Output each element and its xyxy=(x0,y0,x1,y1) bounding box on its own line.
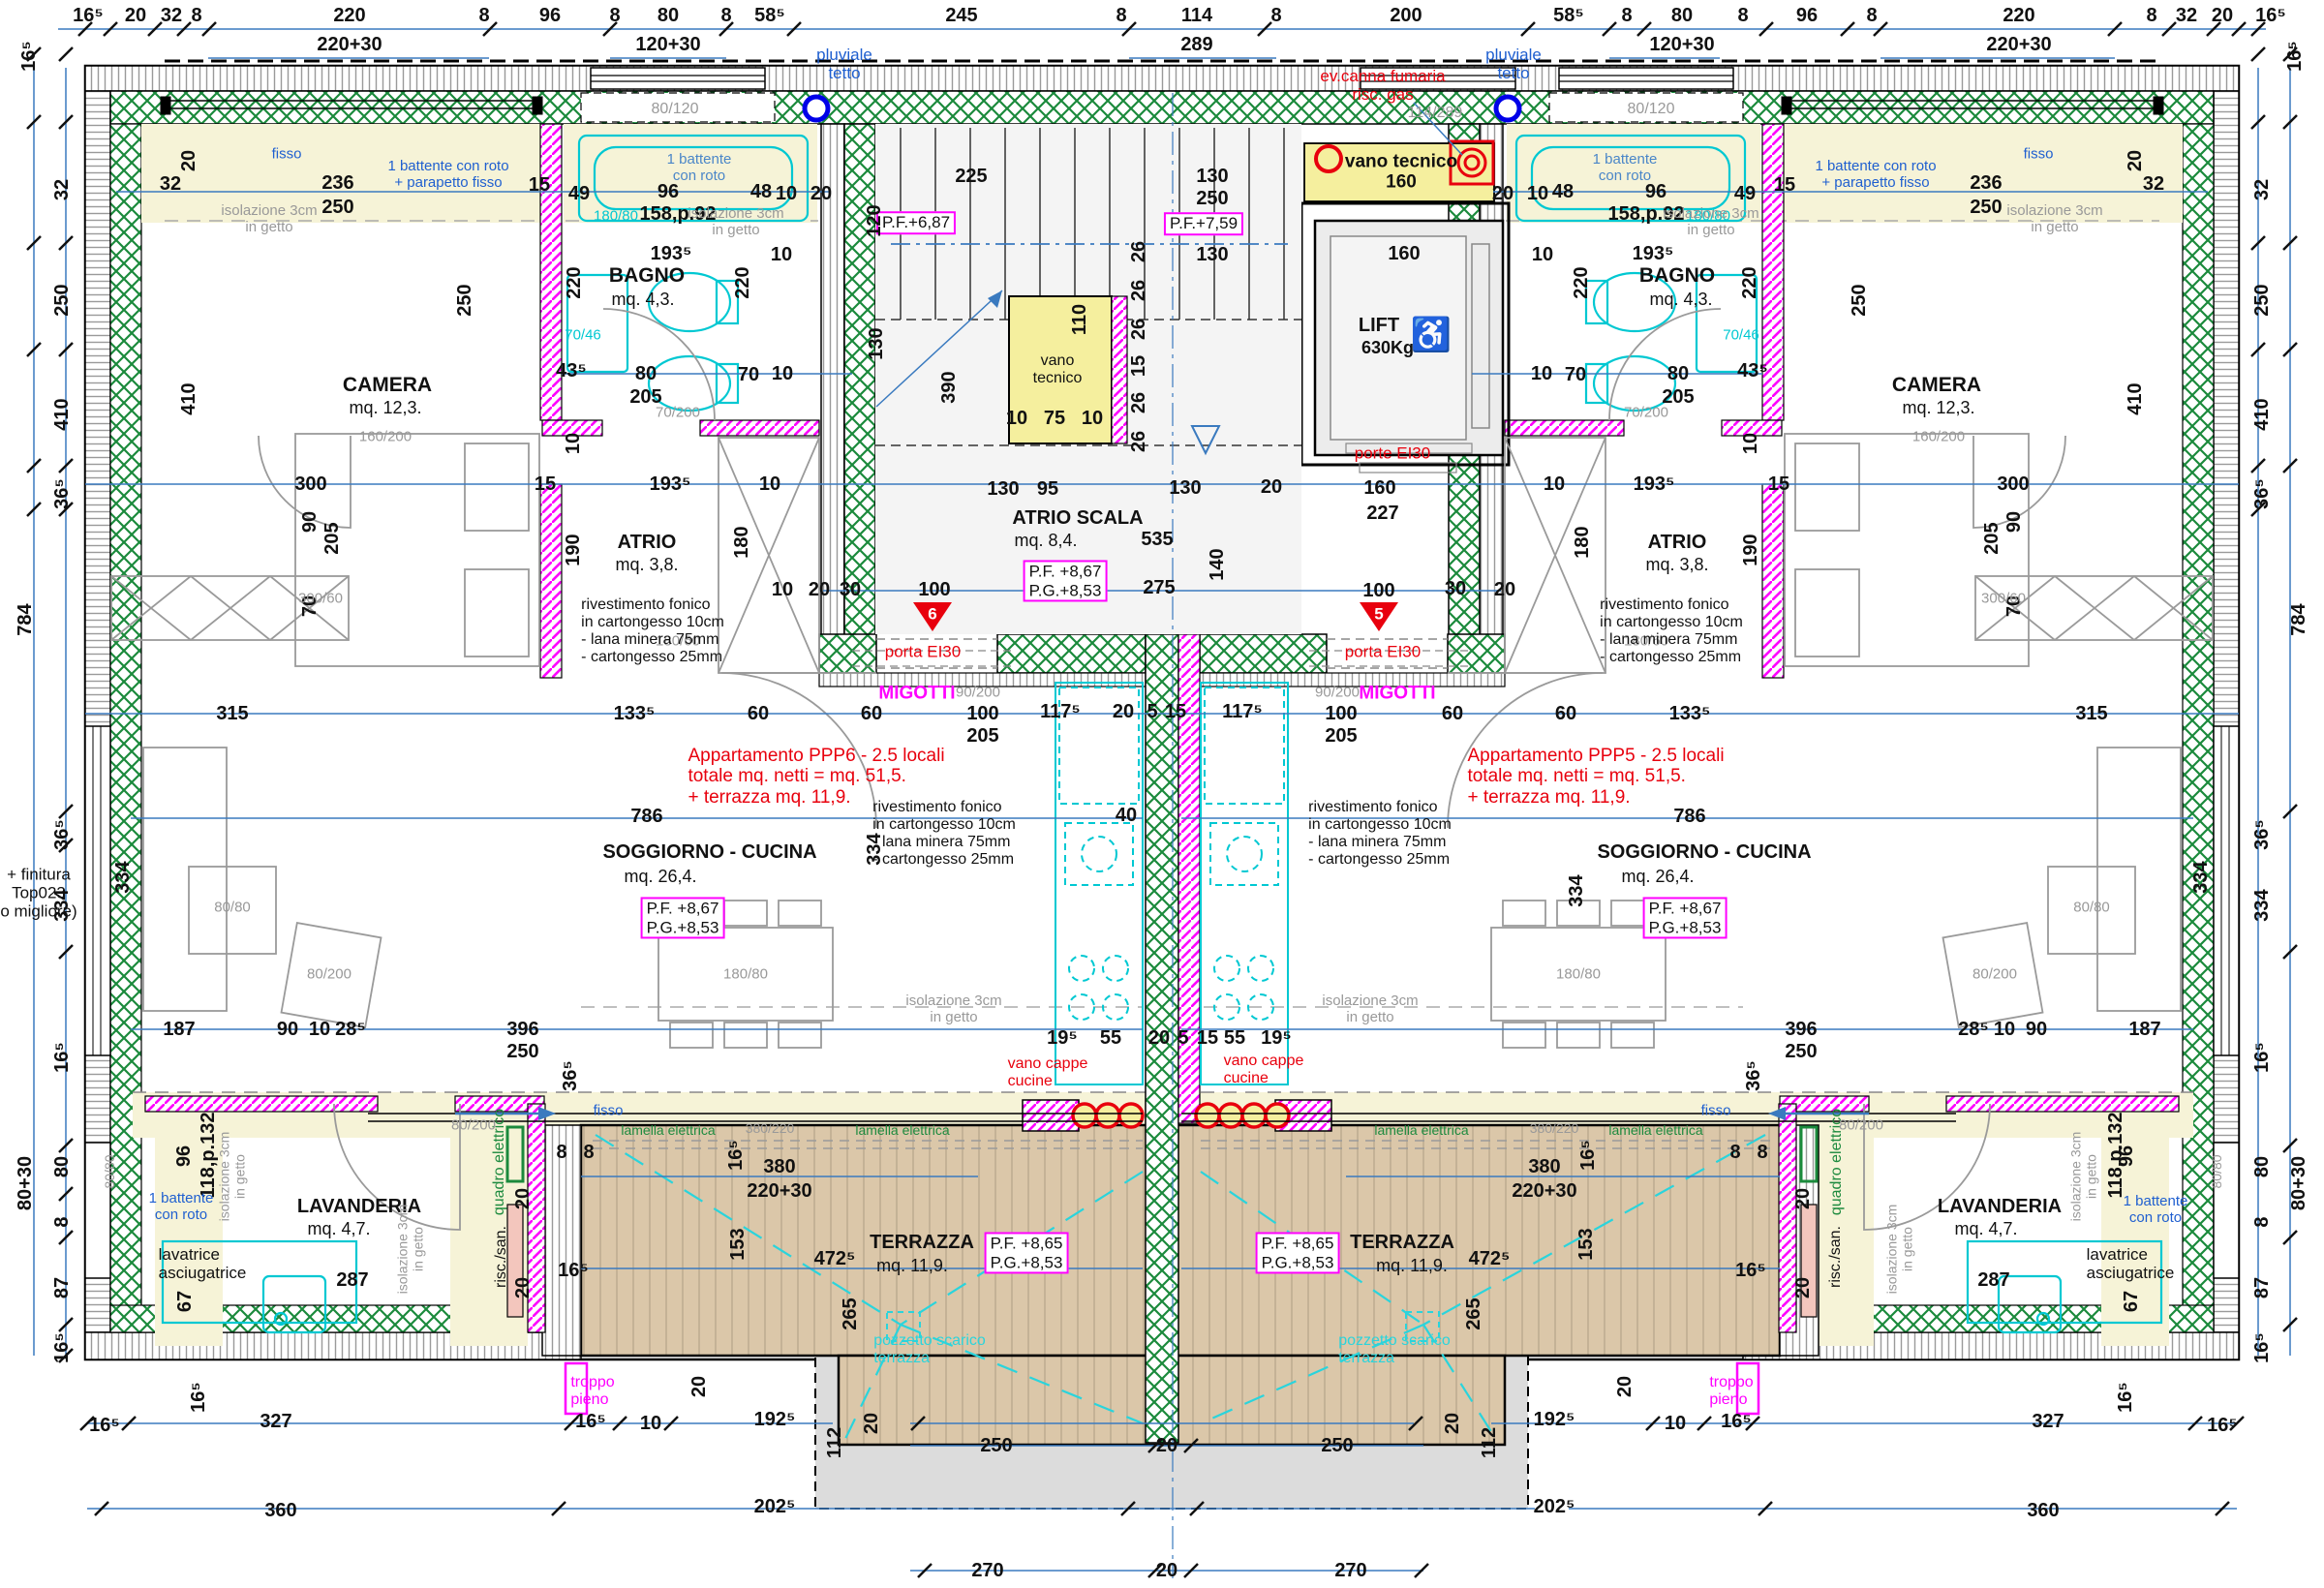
note-iso-sogg-right: isolazione 3cm in getto xyxy=(1322,993,1418,1026)
dim-10: 10 xyxy=(1740,433,1761,454)
dim-20: 20 xyxy=(1792,1277,1814,1298)
dim-5: 5 xyxy=(1177,1027,1188,1049)
dim-289: 289 xyxy=(1180,34,1212,55)
dim-784: 784 xyxy=(15,603,36,635)
dim-250: 250 xyxy=(1849,284,1870,316)
dim-48: 48 xyxy=(1552,181,1574,202)
dim-300: 300 xyxy=(294,473,326,495)
dim-20: 20 xyxy=(1148,1027,1170,1049)
dim-16: 16⁵ xyxy=(51,1042,73,1073)
dim-334: 334 xyxy=(112,861,134,893)
dim-80: 80 xyxy=(1667,363,1689,384)
dim-19: 19⁵ xyxy=(1047,1027,1078,1049)
dim-80: 80 xyxy=(635,363,657,384)
dim-187: 187 xyxy=(2128,1019,2160,1040)
note-lamella-4: lamella elettrica xyxy=(1608,1123,1702,1139)
dim-10: 10 xyxy=(1527,183,1548,204)
dim-786: 786 xyxy=(630,806,662,827)
dim-60: 60 xyxy=(748,703,769,724)
dim-8: 8 xyxy=(1757,1142,1767,1163)
dim-120+30: 120+30 xyxy=(635,34,700,55)
dim-mq.26,4.: mq. 26,4. xyxy=(1621,867,1694,886)
note-battente-cam-right: 1 battente con roto + parapetto fisso xyxy=(1815,159,1936,192)
dim-8: 8 xyxy=(1737,5,1748,26)
dim-80120: 80/120 xyxy=(1628,101,1675,118)
dim-472: 472⁵ xyxy=(1469,1248,1511,1269)
dim-10: 10 xyxy=(772,363,793,384)
dim-110: 110 xyxy=(1069,304,1090,335)
dim-380220: 380/220 xyxy=(746,1121,795,1137)
floor-plan-sheet: 16⁵20328220220+30896880120+30858⁵2458114… xyxy=(0,0,2324,1588)
note-pozzetto-right: pozzetto scarico terrazza xyxy=(1338,1332,1451,1367)
dim-58: 58⁵ xyxy=(1553,5,1584,26)
dim-16: 16⁵ xyxy=(89,1415,120,1436)
dim-10: 10 xyxy=(772,579,793,600)
dim-300: 300 xyxy=(1997,473,2029,495)
note-iso-lav-right-2: isolazione 3cm in getto xyxy=(1884,1205,1914,1295)
dim-220: 220 xyxy=(333,5,365,26)
dim-327: 327 xyxy=(260,1411,291,1432)
dim-mq.8,4.: mq. 8,4. xyxy=(1014,531,1077,550)
note-canna-fumaria: ev.canna fumaria risc. gas xyxy=(1320,67,1445,104)
dim-80200: 80/200 xyxy=(1972,967,2017,984)
dim-220+30: 220+30 xyxy=(317,34,382,55)
dim-16: 16⁵ xyxy=(2115,1382,2136,1413)
dim-180: 180 xyxy=(1572,526,1593,558)
dim-334: 334 xyxy=(1566,874,1587,906)
dim-20: 20 xyxy=(1494,579,1515,600)
dim-32: 32 xyxy=(51,179,73,200)
dim-250: 250 xyxy=(1196,188,1228,209)
dim-250: 250 xyxy=(1321,1435,1353,1456)
dim-96: 96 xyxy=(539,5,561,26)
note-fisso-terr-left: fisso xyxy=(594,1104,624,1120)
dim-15: 15 xyxy=(1197,1027,1218,1049)
note-fisso-terr-right: fisso xyxy=(1701,1104,1731,1120)
dim-30: 30 xyxy=(840,579,861,600)
dim-8: 8 xyxy=(609,5,620,26)
dim-236: 236 xyxy=(321,172,353,194)
dim-67: 67 xyxy=(174,1291,196,1312)
room-lift: LIFT xyxy=(1359,315,1399,336)
label-vano-tecnico-small: vano tecnico xyxy=(1033,352,1083,387)
dim-160: 160 xyxy=(1363,477,1395,499)
dim-200: 200 xyxy=(1390,5,1422,26)
dim-193: 193⁵ xyxy=(651,243,692,264)
dim-160: 160 xyxy=(1388,243,1420,264)
note-porte-ei30: porte EI30 xyxy=(1355,443,1430,462)
room-lavanderia-right: LAVANDERIA xyxy=(1938,1196,2062,1217)
label-vano-tecnico-top: vano tecnico 160 xyxy=(1345,152,1457,194)
dim-15: 15 xyxy=(1165,701,1186,722)
apt-ppp5: Appartamento PPP5 - 2.5 locali totale mq… xyxy=(1467,746,1724,808)
dim-30060: 300/60 xyxy=(298,592,343,608)
dim-49: 49 xyxy=(568,183,590,204)
dim-16: 16⁵ xyxy=(1577,1140,1599,1171)
dim-19: 19⁵ xyxy=(1261,1027,1292,1049)
dim-96: 96 xyxy=(1796,5,1818,26)
dim-28: 28⁵ xyxy=(1958,1019,1989,1040)
note-pluviale-left: pluviale tetto xyxy=(816,46,872,82)
dim-334: 334 xyxy=(864,833,885,865)
dim-265: 265 xyxy=(840,1298,861,1329)
dim-117: 117⁵ xyxy=(1222,701,1263,722)
note-fonico-kitchen-right: rivestimento fonico in cartongesso 10cm … xyxy=(1308,799,1452,869)
dim-26: 26 xyxy=(1128,241,1149,262)
dim-334: 334 xyxy=(2190,861,2212,893)
note-iso-cam-right: isolazione 3cm in getto xyxy=(2006,203,2102,236)
dim-70: 70 xyxy=(738,364,759,385)
dim-390: 390 xyxy=(938,371,960,403)
note-pluviale-right: pluviale tetto xyxy=(1485,46,1542,82)
dim-8080: 80/80 xyxy=(103,1154,118,1188)
dim-15: 15 xyxy=(1774,174,1795,196)
room-atrio-scala: ATRIO SCALA xyxy=(1012,507,1143,529)
dim-8: 8 xyxy=(720,5,731,26)
dim-75: 75 xyxy=(1044,408,1065,429)
dim-16: 16⁵ xyxy=(1721,1411,1752,1432)
dim-100: 100 xyxy=(1325,703,1357,724)
note-battente-bath-left: 1 battente con roto xyxy=(667,152,732,185)
note-iso-sogg-left: isolazione 3cm in getto xyxy=(905,993,1001,1026)
dim-mq.12,3.: mq. 12,3. xyxy=(349,398,421,417)
dim-90: 90 xyxy=(2026,1019,2047,1040)
dim-250: 250 xyxy=(321,197,353,218)
dim-133: 133⁵ xyxy=(1669,703,1711,724)
dim-10: 10 xyxy=(1544,473,1565,495)
note-lamella-3: lamella elettrica xyxy=(1374,1123,1468,1139)
dim-153: 153 xyxy=(727,1228,749,1260)
dim-10: 10 xyxy=(1531,363,1552,384)
dim-16: 16⁵ xyxy=(575,1411,606,1432)
dim-202: 202⁵ xyxy=(1534,1496,1575,1517)
dim-96: 96 xyxy=(173,1145,195,1167)
dim-140: 140 xyxy=(1207,548,1228,580)
dim-130: 130 xyxy=(866,327,887,359)
dim-48: 48 xyxy=(750,181,772,202)
room-soggiorno-right: SOGGIORNO - CUCINA xyxy=(1597,841,1811,863)
dim-7046: 70/46 xyxy=(565,328,601,345)
dim-380: 380 xyxy=(763,1156,795,1177)
dim-250: 250 xyxy=(1785,1041,1817,1062)
dim-410: 410 xyxy=(2251,398,2273,430)
dim-250: 250 xyxy=(454,284,475,316)
dim-10: 10 xyxy=(640,1413,661,1434)
dim-220: 220 xyxy=(564,266,585,298)
dim-8080: 80/80 xyxy=(2073,901,2110,917)
dim-10: 10 xyxy=(1532,244,1553,265)
dim-786: 786 xyxy=(1673,806,1705,827)
dim-80+30: 80+30 xyxy=(2288,1156,2309,1210)
dim-220: 220 xyxy=(1571,266,1592,298)
dim-187: 187 xyxy=(163,1019,195,1040)
note-battente-lav-right: 1 battente con roto xyxy=(2124,1194,2188,1227)
dim-8: 8 xyxy=(2251,1216,2273,1227)
note-iso-lav-left-2: isolazione 3cm in getto xyxy=(395,1205,425,1295)
room-atrio-right: ATRIO xyxy=(1648,532,1707,553)
dim-mq.11,9.: mq. 11,9. xyxy=(876,1256,948,1275)
dim-20: 20 xyxy=(861,1413,882,1434)
dim-227: 227 xyxy=(1366,503,1398,524)
dim-193: 193⁵ xyxy=(1633,243,1674,264)
dim-32: 32 xyxy=(2251,179,2273,200)
dim-16: 16⁵ xyxy=(73,5,104,26)
dim-410: 410 xyxy=(2125,382,2146,414)
dim-15: 15 xyxy=(1128,355,1149,377)
dim-245: 245 xyxy=(945,5,977,26)
dim-118,p.132: 118,p.132 xyxy=(2105,1113,2126,1199)
dim-112: 112 xyxy=(824,1427,845,1458)
note-troppo-right: troppo pieno xyxy=(1709,1374,1753,1409)
dim-120: 120 xyxy=(864,204,885,236)
note-migotti-left: MIGOTTI xyxy=(878,683,955,703)
note-risc-right: risc./san. xyxy=(1827,1226,1845,1288)
note-battente-lav-left: 1 battente con roto xyxy=(149,1191,214,1224)
dim-26: 26 xyxy=(1128,392,1149,413)
note-pozzetto-left: pozzetto scarico terrazza xyxy=(873,1332,986,1367)
dim-202: 202⁵ xyxy=(754,1496,796,1517)
dim-30: 30 xyxy=(1445,578,1466,599)
dim-36: 36⁵ xyxy=(51,478,73,509)
dim-410: 410 xyxy=(51,398,73,430)
dim-16: 16⁵ xyxy=(51,1332,73,1363)
dim-95: 95 xyxy=(1037,478,1058,500)
dim-mq.4,7.: mq. 4,7. xyxy=(1954,1219,2017,1238)
dim-100: 100 xyxy=(1362,580,1394,601)
level-terrazza-left: P.F. +8,65 P.G.+8,53 xyxy=(985,1232,1069,1273)
dim-67: 67 xyxy=(2121,1291,2142,1312)
dim-784: 784 xyxy=(2288,603,2309,635)
dim-236: 236 xyxy=(1970,172,2002,194)
note-porta-ei30-right: porta EI30 xyxy=(1345,642,1421,660)
dim-360: 360 xyxy=(264,1500,296,1521)
note-troppo-left: troppo pieno xyxy=(570,1374,614,1409)
dim-mq.4,3.: mq. 4,3. xyxy=(1649,290,1712,309)
dim-193: 193⁵ xyxy=(650,473,691,495)
dim-16: 16⁵ xyxy=(18,41,40,72)
dim-16: 16⁵ xyxy=(2251,1042,2273,1073)
dim-287: 287 xyxy=(336,1269,368,1291)
note-iso-bath-right: isolazione 3cm in getto xyxy=(1663,206,1758,239)
dim-36: 36⁵ xyxy=(51,819,73,850)
dim-15: 15 xyxy=(535,473,556,495)
dim-130: 130 xyxy=(1169,477,1201,499)
dim-20: 20 xyxy=(2212,5,2233,26)
dim-8: 8 xyxy=(2146,5,2156,26)
dim-15: 15 xyxy=(529,174,550,196)
note-fonico-atrio-left: rivestimento fonico in cartongesso 10cm … xyxy=(581,596,724,666)
note-lavatrice-right: lavatrice asciugatrice xyxy=(2087,1245,2175,1282)
dim-15: 15 xyxy=(1768,473,1789,495)
dim-360: 360 xyxy=(2027,1500,2059,1521)
note-porta-ei30-left: porta EI30 xyxy=(885,642,961,660)
dim-5: 5 xyxy=(1147,701,1157,722)
dim-287: 287 xyxy=(1977,1269,2009,1291)
note-battente-bath-right: 1 battente con roto xyxy=(1593,152,1658,185)
note-iso-lav-right-1: isolazione 3cm in getto xyxy=(2068,1132,2098,1222)
dim-10: 10 xyxy=(1665,1413,1686,1434)
note-lamella-1: lamella elettrica xyxy=(621,1123,715,1139)
dim-10: 10 xyxy=(776,183,797,204)
dim-70: 70 xyxy=(1565,364,1586,385)
dim-80200: 80/200 xyxy=(307,967,352,984)
dim-193: 193⁵ xyxy=(1634,473,1675,495)
dim-70200: 70/200 xyxy=(1624,406,1668,422)
dim-16: 16⁵ xyxy=(2207,1415,2238,1436)
dim-32: 32 xyxy=(161,5,182,26)
note-battente-cam-left: 1 battente con roto + parapetto fisso xyxy=(387,159,508,192)
dim-mq.12,3.: mq. 12,3. xyxy=(1902,398,1974,417)
dim-26: 26 xyxy=(1128,319,1149,340)
dim-36: 36⁵ xyxy=(2251,819,2273,850)
dim-275: 275 xyxy=(1143,577,1175,598)
dim-32: 32 xyxy=(2143,173,2164,195)
dim-43: 43⁵ xyxy=(1737,360,1768,382)
dim-120+30: 120+30 xyxy=(1649,34,1714,55)
note-finitura: + finitura Top023 o migliore) xyxy=(0,865,76,920)
dim-130: 130 xyxy=(1196,244,1228,265)
dim-55: 55 xyxy=(1224,1027,1245,1049)
dim-20: 20 xyxy=(1492,183,1514,204)
level-atrio-scala: P.F. +8,67 P.G.+8,53 xyxy=(1024,560,1108,601)
dim-80: 80 xyxy=(2251,1156,2273,1177)
note-lavatrice-left: lavatrice asciugatrice xyxy=(159,1245,247,1282)
dim-20: 20 xyxy=(810,183,832,204)
dim-114: 114 xyxy=(1181,5,1212,26)
dim-250: 250 xyxy=(1970,197,2002,218)
dim-396: 396 xyxy=(1785,1019,1817,1040)
dim-36: 36⁵ xyxy=(560,1060,581,1091)
dim-8: 8 xyxy=(1729,1142,1740,1163)
dim-60: 60 xyxy=(1442,703,1463,724)
dim-220+30: 220+30 xyxy=(1512,1180,1576,1202)
dim-192: 192⁵ xyxy=(1534,1409,1575,1430)
note-risc-left: risc./san. xyxy=(493,1226,510,1288)
dim-190: 190 xyxy=(563,534,584,565)
dim-130: 130 xyxy=(1196,166,1228,187)
dim-16: 16⁵ xyxy=(188,1382,209,1413)
dim-20: 20 xyxy=(1442,1413,1463,1434)
dim-8: 8 xyxy=(1270,5,1281,26)
note-fonico-kitchen-left: rivestimento fonico in cartongesso 10cm … xyxy=(872,799,1016,869)
dim-8080: 80/80 xyxy=(2210,1154,2225,1188)
dim-16: 16⁵ xyxy=(2255,5,2286,26)
dim-90: 90 xyxy=(277,1019,298,1040)
dim-20: 20 xyxy=(1792,1188,1814,1209)
dim-220: 220 xyxy=(1739,266,1760,298)
dim-10: 10 xyxy=(759,473,780,495)
dim-10: 10 xyxy=(1994,1019,2015,1040)
dim-20: 20 xyxy=(1614,1376,1636,1397)
level-stair-2: P.F.+7,59 xyxy=(1164,212,1243,235)
dim-10: 10 xyxy=(309,1019,330,1040)
room-camera-right: CAMERA xyxy=(1892,374,1981,397)
room-bagno-right: BAGNO xyxy=(1639,264,1715,288)
level-soggiorno-left: P.F. +8,67 P.G.+8,53 xyxy=(641,897,725,938)
dim-380220: 380/220 xyxy=(1530,1121,1579,1137)
dim-16: 16⁵ xyxy=(1735,1260,1766,1281)
dim-40: 40 xyxy=(1116,805,1137,826)
dim-327: 327 xyxy=(2032,1411,2064,1432)
dim-32: 32 xyxy=(2176,5,2197,26)
dim-60: 60 xyxy=(1555,703,1576,724)
room-bagno-left: BAGNO xyxy=(609,264,685,288)
dim-265: 265 xyxy=(1463,1298,1484,1329)
level-terrazza-right: P.F. +8,65 P.G.+8,53 xyxy=(1256,1232,1340,1273)
dim-220+30: 220+30 xyxy=(747,1180,811,1202)
dim-80200: 80/200 xyxy=(1839,1118,1883,1135)
dim-205: 205 xyxy=(1325,725,1357,747)
dim-20: 20 xyxy=(1261,476,1282,498)
room-terrazza-left: TERRAZZA xyxy=(870,1232,974,1253)
dim-250: 250 xyxy=(2251,284,2273,316)
labels-layer: 16⁵20328220220+30896880120+30858⁵2458114… xyxy=(0,0,2324,1588)
dim-20: 20 xyxy=(512,1188,534,1209)
dim-28: 28⁵ xyxy=(335,1019,366,1040)
dim-8: 8 xyxy=(556,1142,566,1163)
dim-20: 20 xyxy=(178,150,199,171)
note-migotti-right: MIGOTTI xyxy=(1359,683,1435,703)
dim-20: 20 xyxy=(125,5,146,26)
dim-16: 16⁵ xyxy=(725,1140,747,1171)
room-terrazza-right: TERRAZZA xyxy=(1350,1232,1454,1253)
dim-100: 100 xyxy=(918,579,950,600)
dim-20: 20 xyxy=(688,1376,710,1397)
dim-16: 16⁵ xyxy=(558,1260,589,1281)
dim-8: 8 xyxy=(478,5,489,26)
dim-250: 250 xyxy=(506,1041,538,1062)
dim-380: 380 xyxy=(1528,1156,1560,1177)
dim-32: 32 xyxy=(160,173,181,195)
dim-18080: 180/80 xyxy=(594,209,638,226)
dim-630Kg: 630Kg xyxy=(1361,338,1414,357)
dim-117: 117⁵ xyxy=(1040,701,1081,722)
note-lamella-2: lamella elettrica xyxy=(855,1123,949,1139)
dim-250: 250 xyxy=(51,284,73,316)
dim-160200: 160/200 xyxy=(359,430,412,446)
dim-20: 20 xyxy=(2125,150,2146,171)
dim-80: 80 xyxy=(51,1156,73,1177)
dim-225: 225 xyxy=(955,166,987,187)
dim-20: 20 xyxy=(809,579,830,600)
room-soggiorno-left: SOGGIORNO - CUCINA xyxy=(602,841,816,863)
dim-220: 220 xyxy=(2003,5,2034,26)
dim-mq.3,8.: mq. 3,8. xyxy=(615,555,678,574)
dim-270: 270 xyxy=(971,1560,1003,1581)
wheelchair-icon: ♿ xyxy=(1411,317,1452,353)
note-vano-cappe-right: vano cappe cucine xyxy=(1224,1053,1304,1087)
dim-8080: 80/80 xyxy=(214,901,251,917)
dim-36: 36⁵ xyxy=(1743,1060,1764,1091)
dim-114289: 114/289 xyxy=(1408,105,1463,122)
door-number-right: 5 xyxy=(1374,604,1383,623)
dim-160200: 160/200 xyxy=(1912,430,1965,446)
note-fisso-cam-left: fisso xyxy=(272,147,302,164)
dim-80120: 80/120 xyxy=(652,101,699,118)
dim-18080: 180/80 xyxy=(1556,967,1601,984)
note-fisso-cam-right: fisso xyxy=(2024,147,2054,164)
dim-87: 87 xyxy=(2251,1277,2273,1298)
note-fonico-atrio-right: rivestimento fonico in cartongesso 10cm … xyxy=(1600,596,1743,666)
dim-8: 8 xyxy=(1866,5,1877,26)
dim-10: 10 xyxy=(771,244,792,265)
dim-270: 270 xyxy=(1334,1560,1366,1581)
dim-20: 20 xyxy=(1113,701,1134,722)
dim-mq.4,3.: mq. 4,3. xyxy=(611,290,674,309)
dim-26: 26 xyxy=(1128,431,1149,452)
dim-mq.4,7.: mq. 4,7. xyxy=(307,1219,370,1238)
dim-133: 133⁵ xyxy=(614,703,656,724)
